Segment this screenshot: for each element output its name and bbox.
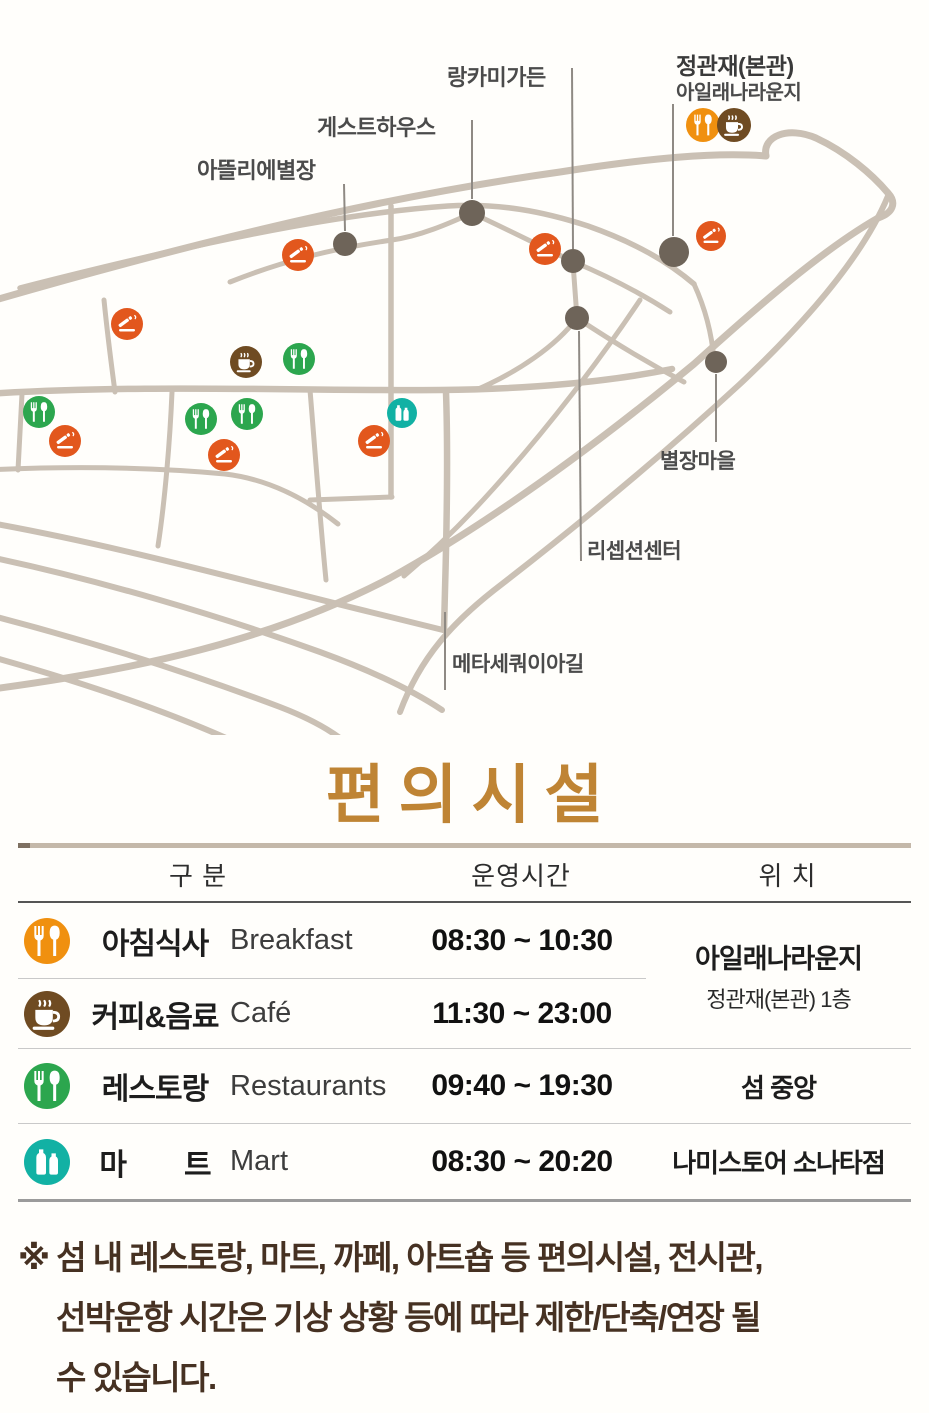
island-facility-map: 정관재(본관) 아일래나라운지 랑카미가든 게스트하우스 아뜰리에별장 별장마을… xyxy=(0,0,929,735)
breakfast-label-kr: 아침식사 xyxy=(80,903,230,979)
restaurant-marker-icon xyxy=(185,403,217,435)
cafe-hours: 11:30 ~ 23:00 xyxy=(398,979,646,1049)
page-title: 편의시설 xyxy=(0,752,929,838)
location-secondary: 정관재(본관) 1층 xyxy=(706,982,850,1014)
table-body: 아침식사 Breakfast 08:30 ~ 10:30 아일래나라운지 정관재… xyxy=(18,903,911,1202)
place-dot-marker xyxy=(565,306,589,330)
smoking-marker-icon xyxy=(696,221,726,251)
pointer-line xyxy=(572,68,573,249)
cafe-label-en: Café xyxy=(230,979,398,1049)
cafe-label-kr: 커피&음료 xyxy=(80,979,230,1049)
road xyxy=(476,318,577,390)
restaurant-hours: 09:40 ~ 19:30 xyxy=(398,1049,646,1124)
coffee-marker-icon xyxy=(230,346,262,378)
table-row-mart-icon-cell xyxy=(18,1124,80,1199)
breakfast-icon xyxy=(24,918,70,964)
table-header-row: 구 분 운영시간 위 치 xyxy=(18,848,911,903)
restaurant-location: 섬 중앙 xyxy=(646,1049,911,1124)
map-label-guesthouse: 게스트하우스 xyxy=(317,110,435,142)
road xyxy=(0,155,766,303)
road xyxy=(694,284,714,360)
footnote-line-3: 수 있습니다. xyxy=(18,1348,911,1408)
header-category: 구 분 xyxy=(18,856,378,893)
road xyxy=(577,318,684,382)
place-dot-marker xyxy=(561,249,585,273)
road xyxy=(310,497,392,500)
table-row-breakfast-icon-cell xyxy=(18,903,80,979)
table-top-border xyxy=(18,843,911,848)
place-dot-marker xyxy=(459,200,485,226)
road xyxy=(18,394,22,470)
smoking-marker-icon xyxy=(358,425,390,457)
map-label-langkami-garden: 랑카미가든 xyxy=(447,60,546,92)
coffee-marker-icon xyxy=(717,108,751,142)
road xyxy=(310,390,326,580)
location-primary: 아일래나라운지 xyxy=(695,937,862,976)
map-label-metasequoia-road: 메타세쿼이아길 xyxy=(452,648,584,678)
road xyxy=(0,369,672,394)
place-dot-marker xyxy=(333,232,357,256)
header-hours: 운영시간 xyxy=(378,856,664,893)
smoking-marker-icon xyxy=(529,233,561,265)
restaurant-label-en: Restaurants xyxy=(230,1049,398,1124)
smoking-marker-icon xyxy=(282,239,314,271)
header-location: 위 치 xyxy=(664,856,911,893)
mart-hours: 08:30 ~ 20:20 xyxy=(398,1124,646,1199)
mart-location: 나미스토어 소나타점 xyxy=(646,1124,911,1199)
place-dot-marker xyxy=(705,351,727,373)
map-label-reception-center: 리셉션센터 xyxy=(587,535,681,565)
map-label-villa-village: 별장마을 xyxy=(660,445,735,475)
smoking-marker-icon xyxy=(111,308,143,340)
restaurant-marker-icon xyxy=(23,396,55,428)
cafe-icon xyxy=(24,991,70,1037)
map-canvas xyxy=(0,0,929,735)
restaurant-marker-icon xyxy=(283,343,315,375)
map-label-atelier-villa: 아뜰리에별장 xyxy=(197,153,315,185)
road xyxy=(0,468,338,524)
footnote: ※ 섬 내 레스토랑, 마트, 까페, 아트숍 등 편의시설, 전시관, 선박운… xyxy=(18,1228,911,1408)
smoking-marker-icon xyxy=(208,439,240,471)
road xyxy=(400,196,888,712)
pointer-line xyxy=(344,184,345,231)
footnote-line-2: 선박운항 시간은 기상 상황 등에 따라 제한/단축/연장 될 xyxy=(18,1288,911,1348)
place-dot-marker xyxy=(659,237,689,267)
breakfast-marker-icon xyxy=(686,108,720,142)
road xyxy=(0,218,878,690)
table-row-restaurant-icon-cell xyxy=(18,1049,80,1124)
breakfast-cafe-location: 아일래나라운지 정관재(본관) 1층 xyxy=(646,903,911,1049)
road xyxy=(766,133,893,218)
smoking-marker-icon xyxy=(49,425,81,457)
restaurant-marker-icon xyxy=(231,398,263,430)
mart-icon xyxy=(24,1139,70,1185)
restaurant-label-kr: 레스토랑 xyxy=(80,1049,230,1124)
mart-label-en: Mart xyxy=(230,1124,398,1199)
road-network xyxy=(0,133,893,735)
footnote-line-1: ※ 섬 내 레스토랑, 마트, 까페, 아트숍 등 편의시설, 전시관, xyxy=(18,1228,911,1288)
restaurant-icon xyxy=(24,1063,70,1109)
mart-marker-icon xyxy=(387,398,417,428)
table-row-cafe-icon-cell xyxy=(18,979,80,1049)
facility-hours-table: 구 분 운영시간 위 치 아침식사 Breakfast 08:30 ~ 10:3… xyxy=(18,843,911,1202)
breakfast-hours: 08:30 ~ 10:30 xyxy=(398,903,646,979)
breakfast-label-en: Breakfast xyxy=(230,903,398,979)
road xyxy=(444,392,447,630)
road xyxy=(104,300,115,392)
map-label-isle-lounge: 아일래나라운지 xyxy=(676,76,801,105)
mart-label-kr: 마 트 xyxy=(80,1124,230,1199)
